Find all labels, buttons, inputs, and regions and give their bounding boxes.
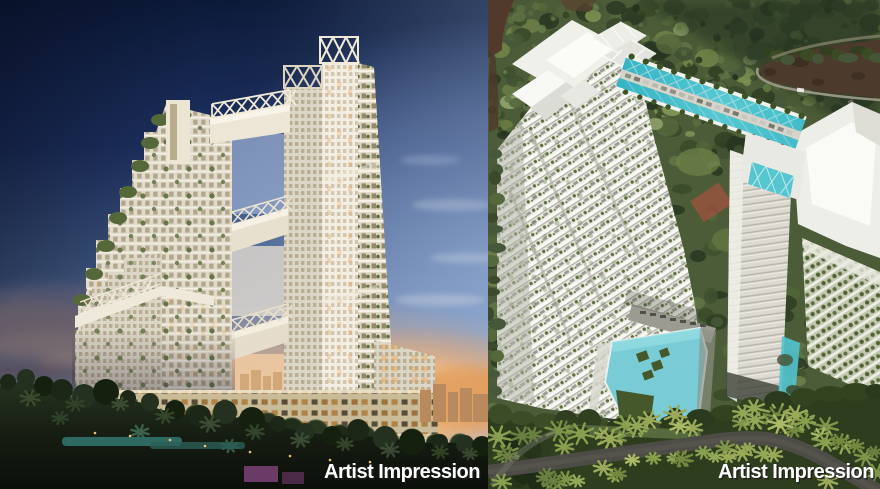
svg-text:Artist Impression: Artist Impression [718,461,874,483]
svg-text:Artist Impression: Artist Impression [324,461,480,483]
